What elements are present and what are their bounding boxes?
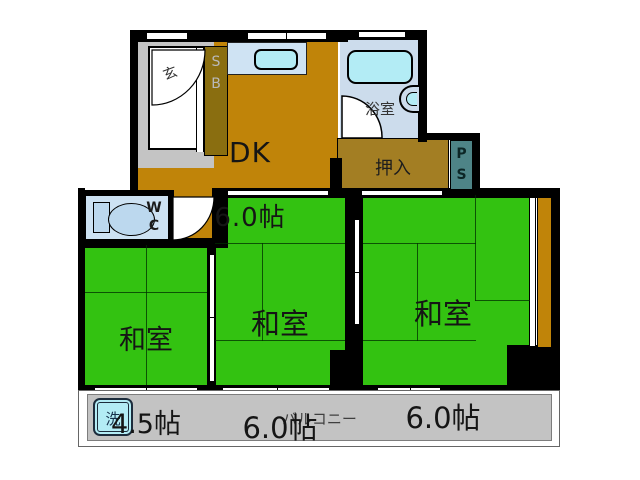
pillar-strip	[537, 197, 552, 348]
wc-letter: W	[146, 199, 161, 217]
wall	[418, 30, 427, 142]
shoe-box-letter: B	[211, 73, 221, 95]
room-name: 和室	[215, 298, 345, 350]
washitsu-6-right-label: 和室 6.0帖	[368, 236, 518, 480]
door-tick	[345, 272, 363, 273]
window	[146, 32, 188, 40]
window-tick	[286, 30, 287, 41]
window	[247, 32, 327, 40]
wall	[551, 188, 560, 353]
room-size: 6.0帖	[368, 392, 518, 444]
dk-size: 6.0帖	[165, 202, 335, 235]
shoe-box-letter: S	[212, 51, 221, 73]
room-size: 4.5帖	[85, 404, 207, 446]
pipe-space-letter: P	[456, 144, 466, 165]
bathroom-label: 浴室	[352, 98, 408, 119]
dk-label: DK 6.0帖	[165, 103, 335, 268]
washitsu-6-mid-label: 和室 6.0帖	[215, 246, 345, 480]
room-name: 和室	[368, 288, 518, 340]
room-name: 和室	[85, 320, 207, 362]
wall	[418, 133, 480, 140]
dk-name: DK	[165, 136, 335, 169]
room-size: 6.0帖	[215, 402, 345, 454]
sliding-door	[362, 190, 442, 196]
washitsu-4-5-label: 和室 4.5帖	[85, 278, 207, 480]
window	[358, 31, 406, 38]
kitchen-sink-icon	[254, 49, 298, 70]
window-right	[529, 198, 536, 346]
wc-label: W C	[141, 199, 167, 235]
pipe-space: P S	[450, 140, 473, 190]
bathtub-icon	[347, 50, 413, 84]
wall	[130, 30, 138, 198]
pipe-space-letter: S	[456, 165, 466, 186]
wc-letter: C	[149, 217, 159, 235]
closet-label: 押入	[337, 154, 449, 180]
floorplan: S B P S W C バルコニー 洗 DK	[0, 0, 640, 480]
